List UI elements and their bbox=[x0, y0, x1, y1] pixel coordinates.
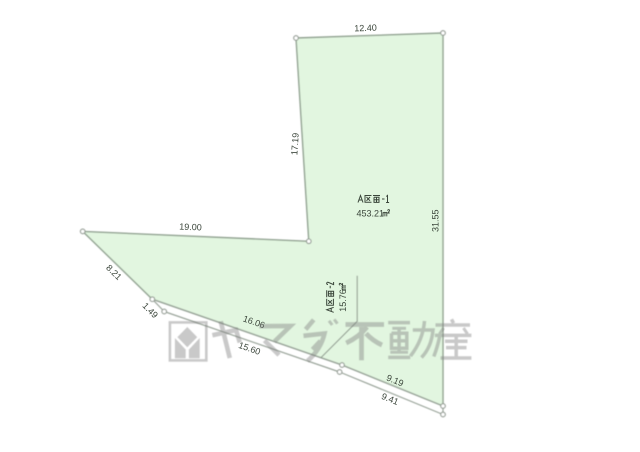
svg-text:12.40: 12.40 bbox=[354, 23, 377, 34]
svg-text:15.76: 15.76 bbox=[338, 289, 348, 312]
svg-text:19.00: 19.00 bbox=[179, 222, 202, 233]
svg-text:31.55: 31.55 bbox=[431, 209, 441, 232]
svg-text:453.21: 453.21 bbox=[357, 208, 385, 218]
svg-text:17.19: 17.19 bbox=[289, 132, 300, 155]
